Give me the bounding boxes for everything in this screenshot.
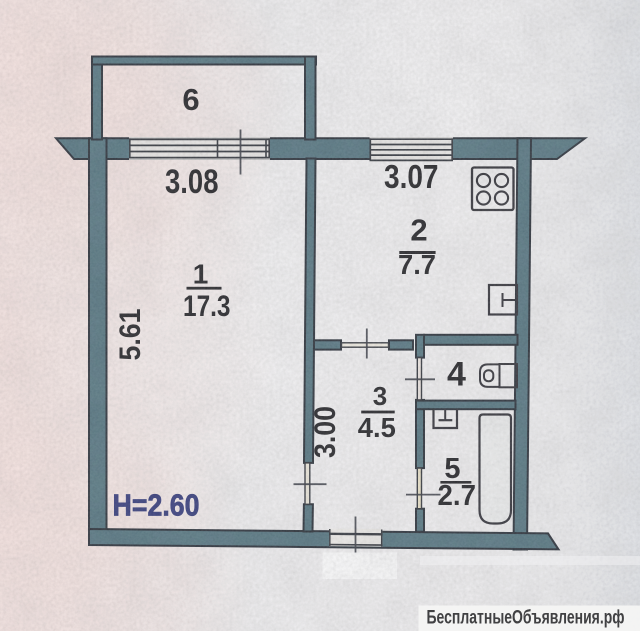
svg-text:БесплатныеОбъявления.рф: БесплатныеОбъявления.рф	[427, 608, 625, 629]
